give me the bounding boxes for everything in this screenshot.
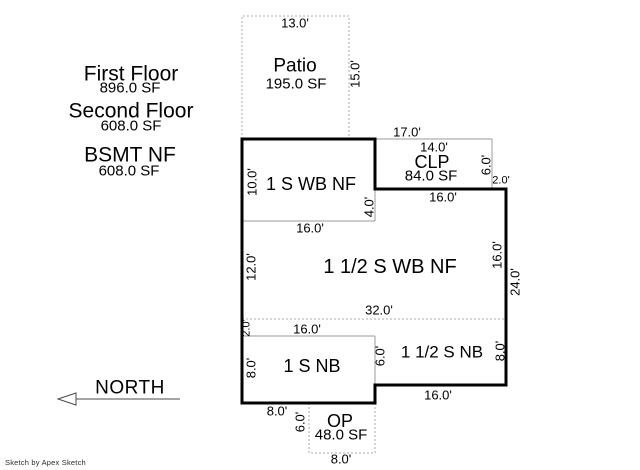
credit-text: Sketch by Apex Sketch — [5, 458, 86, 467]
area-sf-op: 48.0 SF — [315, 428, 368, 443]
area-label-1half-nb: 1 1/2 S NB — [401, 344, 483, 361]
area-sf-clp: 84.0 SF — [405, 169, 458, 184]
area-sf-patio: 195.0 SF — [266, 77, 327, 92]
dim-patio-right: 15.0' — [349, 60, 362, 88]
area-label-1s-nb: 1 S NB — [283, 357, 340, 375]
dim-op-bottom: 8.0' — [331, 453, 352, 466]
dim-nb-divider: 6.0' — [374, 346, 387, 367]
dim-left-upper: 10.0' — [246, 168, 259, 196]
dim-left-lower: 8.0' — [245, 358, 258, 379]
north-label: NORTH — [95, 379, 165, 398]
dim-left-mid: 12.0' — [245, 253, 258, 281]
dim-right-overall: 24.0' — [509, 268, 522, 296]
dim-nb1-top: 16.0' — [293, 323, 321, 336]
apex-sketch-page: First Floor 896.0 SF Second Floor 608.0 … — [0, 0, 640, 470]
area-label-1half-wb-nf: 1 1/2 S WB NF — [323, 257, 456, 277]
dim-patio-top: 13.0' — [281, 17, 309, 30]
dim-wb1-right: 4.0' — [363, 197, 376, 218]
area-label-patio: Patio — [273, 57, 316, 76]
dim-bottom-left: 8.0' — [267, 405, 288, 418]
area-label-1s-wb-nf: 1 S WB NF — [266, 175, 356, 193]
dim-clp-bottom: 16.0' — [429, 191, 457, 204]
dim-nb2-bottom: 16.0' — [424, 389, 452, 402]
summary-first-floor-sf: 896.0 SF — [100, 81, 161, 96]
dim-clp-offset: 2.0' — [492, 176, 509, 187]
dim-upper-overall: 17.0' — [393, 126, 421, 139]
dim-left-offset: 2.0' — [242, 319, 253, 336]
dim-clp-top: 14.0' — [420, 141, 448, 154]
north-arrow-head — [58, 393, 76, 405]
dim-right-upper: 16.0' — [491, 241, 504, 269]
dim-right-lower: 8.0' — [494, 341, 507, 362]
dim-wb1-bottom: 16.0' — [296, 222, 324, 235]
dim-op-left: 6.0' — [294, 412, 307, 433]
dim-clp-right: 6.0' — [480, 155, 493, 176]
dim-mid-width: 32.0' — [365, 304, 393, 317]
summary-bsmt-sf: 608.0 SF — [99, 164, 160, 179]
summary-second-floor-sf: 608.0 SF — [101, 119, 162, 134]
